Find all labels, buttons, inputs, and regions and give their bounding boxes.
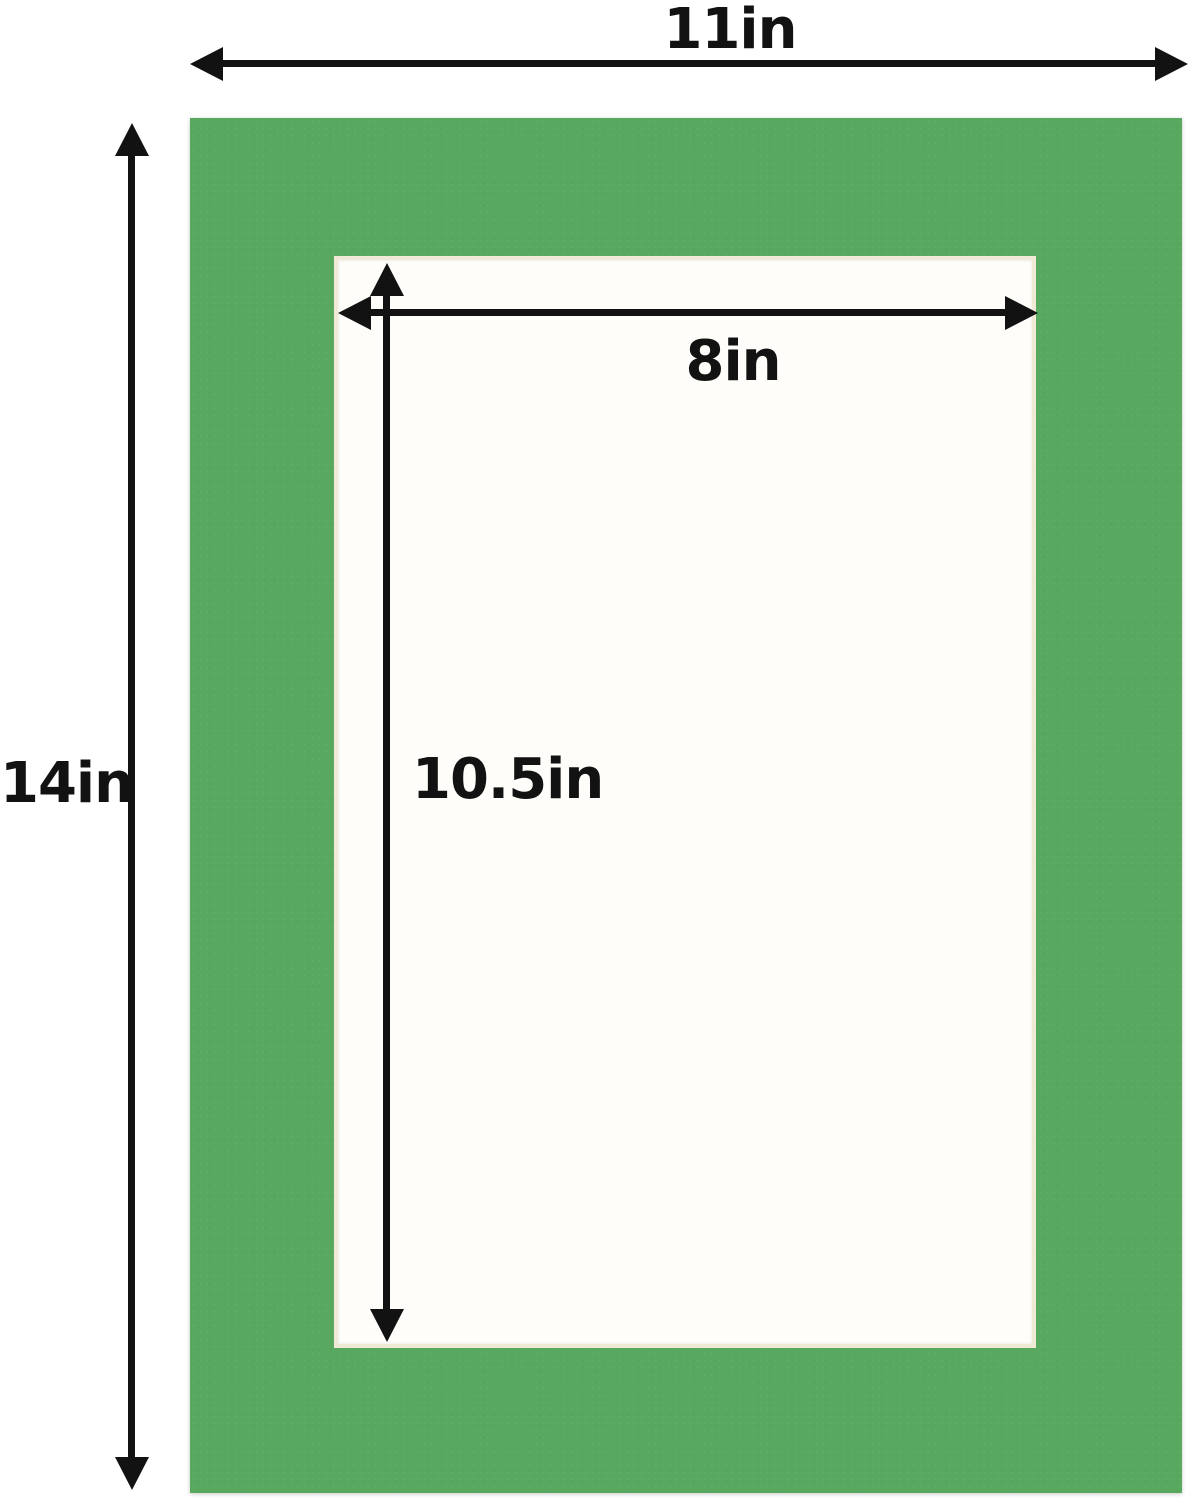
opening-height-label: 10.5in <box>412 752 603 808</box>
opening-height-arrow <box>383 296 390 1309</box>
arrowhead-up-icon <box>115 123 149 156</box>
arrowhead-up-icon <box>370 263 404 296</box>
arrowhead-down-icon <box>370 1309 404 1342</box>
outer-width-label: 11in <box>630 2 830 58</box>
arrowhead-left-icon <box>190 47 223 81</box>
arrowhead-left-icon <box>338 296 371 330</box>
opening-width-label: 8in <box>633 334 833 390</box>
opening-width-arrow <box>371 309 1005 316</box>
arrowhead-right-icon <box>1155 47 1188 81</box>
outer-height-label: 14in <box>0 756 116 812</box>
arrowhead-right-icon <box>1005 296 1038 330</box>
product-dimension-diagram: 11in 14in 8in 10.5in <box>0 0 1195 1500</box>
arrowhead-down-icon <box>115 1457 149 1490</box>
